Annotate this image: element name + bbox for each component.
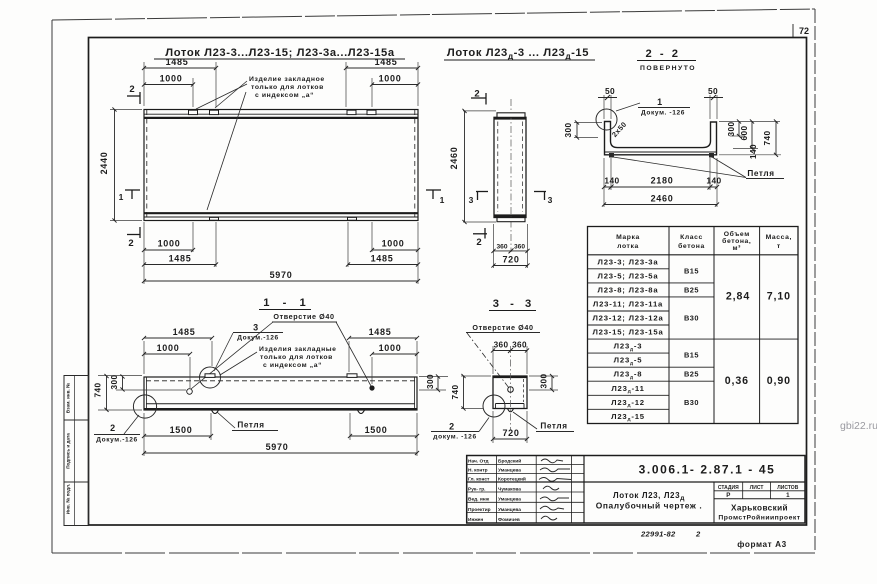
svg-text:Марка: Марка [616,234,640,241]
svg-text:Рук- гр.: Рук- гр. [468,486,485,492]
svg-text:Фомичев: Фомичев [498,517,520,523]
svg-text:лотка: лотка [617,243,639,250]
svg-text:1000: 1000 [160,74,183,84]
svg-text:м³: м³ [733,245,742,252]
svg-text:300: 300 [110,375,119,390]
svg-text:50: 50 [605,86,615,96]
svg-text:360: 360 [514,243,525,250]
svg-text:2440: 2440 [99,152,109,175]
svg-text:740: 740 [763,131,772,146]
svg-text:Лоток Л23-3...Л23-15; Л23-3а..: Лоток Л23-3...Л23-15; Л23-3а...Л23-15а [165,47,395,59]
svg-text:1485: 1485 [173,327,196,337]
svg-text:Инжен: Инжен [468,517,483,523]
svg-text:2: 2 [128,238,133,249]
svg-text:ПромстРойниипроект: ПромстРойниипроект [718,514,800,522]
svg-text:3: 3 [253,323,259,333]
svg-text:Уманцева: Уманцева [498,468,521,474]
svg-text:360: 360 [494,341,509,350]
svg-text:2: 2 [449,422,455,432]
svg-text:формат А3: формат А3 [737,540,787,549]
svg-text:бетона,: бетона, [722,237,751,245]
svg-text:Л23-5; Л23-5а: Л23-5; Л23-5а [598,271,659,280]
svg-text:СТАДИЯ: СТАДИЯ [718,485,739,491]
svg-text:Коротецкий: Коротецкий [498,476,526,483]
svg-text:1: 1 [440,195,445,205]
svg-text:Докум.-126: Докум.-126 [96,437,138,444]
svg-text:Л23-3; Л23-3а: Л23-3; Л23-3а [598,257,659,266]
svg-text:Изделие закладное: Изделие закладное [249,76,325,83]
svg-text:2: 2 [695,530,701,539]
svg-text:360: 360 [512,341,527,350]
svg-text:Уманцева: Уманцева [498,497,521,503]
svg-text:720: 720 [502,255,519,265]
svg-text:В25: В25 [684,370,699,379]
svg-text:3 - 3: 3 - 3 [493,298,535,310]
svg-text:140: 140 [749,144,758,159]
svg-text:1: 1 [786,492,790,499]
svg-text:бетона: бетона [678,242,705,250]
svg-text:Изделия закладные: Изделия закладные [259,346,337,353]
svg-text:ПОВЕРНУТО: ПОВЕРНУТО [640,65,696,72]
svg-text:Докум.-126: Докум.-126 [237,335,279,342]
svg-text:Бродский: Бродский [498,458,521,465]
svg-text:Р: Р [726,492,730,499]
svg-text:3: 3 [548,195,553,205]
svg-text:1: 1 [119,192,124,202]
svg-text:5970: 5970 [266,442,289,452]
svg-text:В30: В30 [684,314,699,323]
svg-text:Нач. Отд: Нач. Отд [468,459,489,465]
svg-text:740: 740 [451,385,460,400]
svg-text:Харьковский: Харьковский [731,504,788,513]
svg-text:5970: 5970 [270,270,293,280]
svg-text:22991-82: 22991-82 [640,530,676,539]
svg-text:докум. -126: докум. -126 [433,434,476,441]
svg-text:2180: 2180 [651,176,674,186]
svg-text:2: 2 [129,84,134,95]
svg-text:Петля: Петля [237,421,264,430]
svg-text:ЛИСТ: ЛИСТ [750,485,764,491]
svg-text:Проектир: Проектир [468,507,491,513]
svg-text:В30: В30 [684,398,699,407]
svg-text:72: 72 [799,26,809,36]
svg-text:1500: 1500 [365,425,388,435]
svg-text:2460: 2460 [651,194,674,204]
svg-text:Петля: Петля [747,169,774,178]
svg-text:0,90: 0,90 [767,375,791,387]
svg-text:1000: 1000 [382,239,405,249]
svg-text:740: 740 [94,383,103,398]
svg-text:360: 360 [496,243,507,250]
svg-text:50: 50 [708,86,718,96]
svg-text:300: 300 [727,122,736,137]
svg-text:ЛИСТОВ: ЛИСТОВ [777,485,798,491]
svg-text:3: 3 [469,195,474,205]
svg-text:2 - 2: 2 - 2 [646,48,681,60]
svg-text:1: 1 [657,97,663,107]
svg-text:Л23-15; Л23-15а: Л23-15; Л23-15а [592,328,663,337]
svg-text:Вед. инж: Вед. инж [468,497,490,503]
svg-text:Опалубочный чертеж .: Опалубочный чертеж . [596,501,703,511]
svg-text:1485: 1485 [371,254,394,264]
svg-text:1000: 1000 [379,343,402,353]
svg-text:Отверстие Ø40: Отверстие Ø40 [472,323,533,332]
svg-text:1000: 1000 [157,343,180,353]
svg-text:Докум. -126: Докум. -126 [641,110,685,117]
svg-text:с индексом „а“: с индексом „а“ [263,362,322,369]
svg-text:Л23-12; Л23-12а: Л23-12; Л23-12а [592,314,663,323]
svg-text:2460: 2460 [449,147,459,170]
svg-text:В15: В15 [684,351,699,360]
svg-text:1500: 1500 [170,425,193,435]
svg-text:Уманцева: Уманцева [498,507,521,513]
svg-text:300: 300 [540,374,549,389]
svg-text:140: 140 [706,176,721,186]
svg-text:с индексом „а“: с индексом „а“ [255,92,314,99]
svg-text:В25: В25 [684,285,699,294]
svg-text:Л23-8; Л23-8а: Л23-8; Л23-8а [598,285,659,294]
svg-text:Чумакова: Чумакова [498,486,521,492]
svg-text:только для лотков: только для лотков [260,354,333,361]
svg-text:только для лотков: только для лотков [251,84,324,91]
svg-text:1 - 1: 1 - 1 [263,297,310,309]
svg-text:300: 300 [564,123,573,138]
svg-text:2: 2 [476,237,481,248]
svg-text:1485: 1485 [369,327,392,337]
svg-text:7,10: 7,10 [767,291,791,303]
svg-text:т: т [777,243,781,250]
svg-text:1000: 1000 [158,239,181,249]
svg-text:0,36: 0,36 [725,375,749,387]
svg-text:1485: 1485 [375,57,398,67]
svg-text:1485: 1485 [166,57,189,67]
svg-text:gbi22.ru: gbi22.ru [840,420,877,432]
svg-text:720: 720 [502,428,519,438]
svg-text:Класс: Класс [680,234,703,241]
svg-text:Петля: Петля [540,422,567,431]
svg-text:Н. контр: Н. контр [468,468,488,474]
svg-text:Инв. № подл.: Инв. № подл. [66,484,71,514]
svg-text:Взам. инв. №: Взам. инв. № [66,383,71,413]
svg-text:Масса,: Масса, [766,234,792,241]
svg-text:1000: 1000 [379,74,402,84]
svg-text:Объем: Объем [724,230,750,238]
svg-text:3.006.1- 2.87.1 - 45: 3.006.1- 2.87.1 - 45 [639,463,776,477]
svg-text:Подпись и дата: Подпись и дата [66,433,71,469]
svg-text:2: 2 [110,423,116,433]
svg-text:Л23-11; Л23-11а: Л23-11; Л23-11а [593,300,663,309]
svg-text:140: 140 [604,176,619,186]
svg-text:2,84: 2,84 [726,291,750,303]
svg-text:В15: В15 [684,266,699,275]
svg-text:1485: 1485 [169,254,192,264]
svg-text:600: 600 [740,126,749,141]
svg-text:Отверстие Ø40: Отверстие Ø40 [273,312,334,321]
svg-text:Гл. конст: Гл. конст [468,477,490,483]
svg-text:300: 300 [426,374,435,389]
